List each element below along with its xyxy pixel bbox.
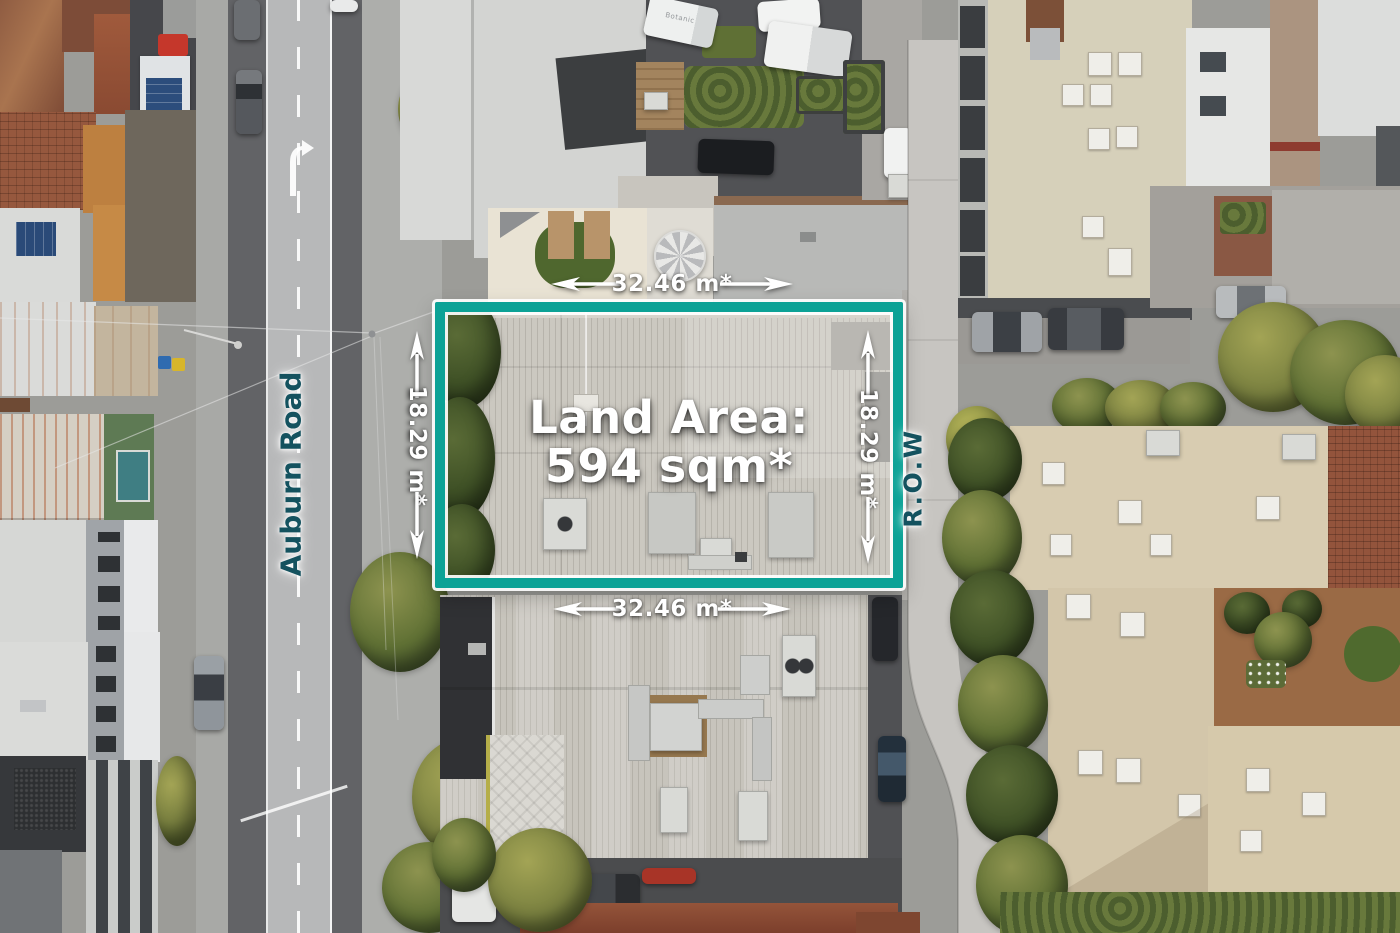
skylight: [1088, 52, 1112, 76]
skylight-panel-dark: [960, 106, 985, 150]
roof-vent-sw: [20, 700, 46, 712]
window-dark: [1200, 52, 1226, 72]
skylight: [1088, 128, 1110, 150]
skylight: [1240, 830, 1262, 852]
road-label-auburn: Auburn Road: [275, 372, 308, 577]
dimension-left: 18.29 m*: [404, 386, 430, 507]
parked-navy-car: [878, 736, 906, 802]
arrow-right-icon: [718, 601, 792, 617]
skylight-panel-dark: [960, 6, 985, 48]
parked-suv: [972, 312, 1042, 352]
car-on-road: [234, 0, 260, 40]
skylight: [1120, 612, 1145, 637]
parked-dark-car: [1048, 308, 1124, 350]
planter-dark: [843, 60, 885, 134]
window-dark: [1200, 96, 1226, 116]
skylight: [1078, 750, 1103, 775]
dimension-bottom: 32.46 m*: [612, 596, 733, 622]
skylight: [1062, 84, 1084, 106]
bin-blue: [158, 356, 171, 369]
arrow-down-icon: [860, 497, 876, 565]
skylight-panel-dark: [960, 210, 985, 252]
road-label-row: R.O.W: [899, 428, 928, 528]
parked-car-west-kerb: [194, 656, 224, 730]
courtyard-light-patch: [1272, 190, 1400, 304]
land-area-title: Land Area:: [435, 394, 903, 442]
tree-south: [488, 828, 592, 932]
white-roof-north: [400, 0, 474, 240]
terracotta-roof-east: [1328, 426, 1400, 598]
skylight: [1116, 758, 1141, 783]
dimension-right: 18.29 m*: [855, 389, 881, 510]
lane-line-left: [266, 0, 268, 933]
bottom-hedge: [1000, 892, 1400, 933]
laneway-tree: [958, 655, 1048, 755]
skylight: [1246, 768, 1270, 792]
ac-unit: [782, 635, 816, 697]
skylight-panel-dark: [960, 256, 985, 296]
laneway-tree: [950, 570, 1034, 666]
skylight: [1256, 496, 1280, 520]
dimension-top: 32.46 m*: [612, 271, 733, 297]
skylight: [1090, 84, 1112, 106]
hedge-row: [684, 66, 804, 128]
ac-unit: [738, 791, 768, 841]
teal-window: [116, 450, 150, 502]
red-car: [642, 868, 696, 884]
hvac-unit: [650, 703, 702, 751]
skylight: [1082, 216, 1104, 238]
arrow-up-icon: [860, 329, 876, 397]
balcony-slots-2: [96, 640, 116, 752]
ac-unit: [660, 787, 688, 833]
tan-wall-building: [94, 306, 158, 396]
duct: [698, 699, 764, 719]
white-roof-ne: [1318, 0, 1400, 136]
planter-greenery: [1220, 202, 1266, 234]
footpath-west: [196, 0, 230, 933]
car-on-road: [330, 0, 358, 12]
red-awning: [158, 34, 188, 56]
skylight: [1066, 594, 1091, 619]
balcony-slots: [98, 532, 120, 632]
bin-yellow: [172, 358, 185, 371]
orange-building: [83, 125, 125, 213]
roof-vent: [468, 643, 486, 655]
roof-vent: [800, 232, 816, 242]
beige-roof-se: [1208, 726, 1400, 908]
duct: [740, 655, 770, 695]
gray-roof-sw: [0, 850, 62, 933]
skylight: [1150, 534, 1172, 556]
land-area-value: 594 sqm*: [435, 442, 903, 491]
skylight: [1118, 52, 1142, 76]
duct: [628, 685, 650, 761]
arrow-down-icon: [409, 492, 425, 560]
skylight-panel-dark: [960, 56, 985, 100]
rust-sliver: [856, 912, 920, 933]
aerial-property-photo: Botanic: [0, 0, 1400, 933]
skylight: [1042, 462, 1065, 485]
skylight: [1108, 248, 1132, 276]
laneway-tree: [966, 745, 1058, 845]
ac-unit: [1146, 430, 1180, 456]
flower-bed: [1246, 660, 1286, 688]
slat-awning-2: [124, 632, 160, 762]
skylight: [1116, 126, 1138, 148]
solar-panel-2: [16, 222, 56, 256]
black-car: [697, 139, 774, 176]
skylight: [1118, 500, 1142, 524]
rusty-gable-roof: [0, 414, 106, 520]
gravel-patch: [14, 768, 76, 830]
skylight: [1302, 792, 1326, 816]
land-area-label: Land Area: 594 sqm*: [435, 394, 903, 490]
glass-facade: [86, 760, 158, 933]
skylight-panel-dark: [960, 158, 985, 202]
ac-unit: [644, 92, 668, 110]
tree-south: [432, 818, 496, 892]
skylight: [1050, 534, 1072, 556]
ac-unit: [1282, 434, 1316, 460]
white-roof-rust-streaks: [0, 302, 96, 396]
silver-vent: [1030, 28, 1060, 60]
rust-roof-nw: [0, 0, 64, 114]
car-on-road: [236, 70, 262, 134]
red-roof-line: [1270, 142, 1320, 151]
arrow-right-icon: [720, 276, 794, 292]
round-lawn: [1344, 626, 1400, 682]
dark-gray-roof-ne: [1376, 126, 1400, 192]
duct: [752, 717, 772, 781]
gray-roof-tl: [163, 0, 198, 38]
slat-awning: [124, 520, 158, 642]
tree: [156, 756, 198, 846]
turn-arrow-marking: [288, 138, 314, 196]
brown-fence: [0, 398, 30, 412]
roof-seam: [440, 687, 902, 690]
picnic-table: [584, 211, 610, 259]
tile-roof-west: [0, 112, 96, 210]
picnic-table: [548, 211, 574, 259]
gray-mixed-roof: [125, 110, 198, 302]
tan-sloped-roof: [1270, 0, 1320, 196]
